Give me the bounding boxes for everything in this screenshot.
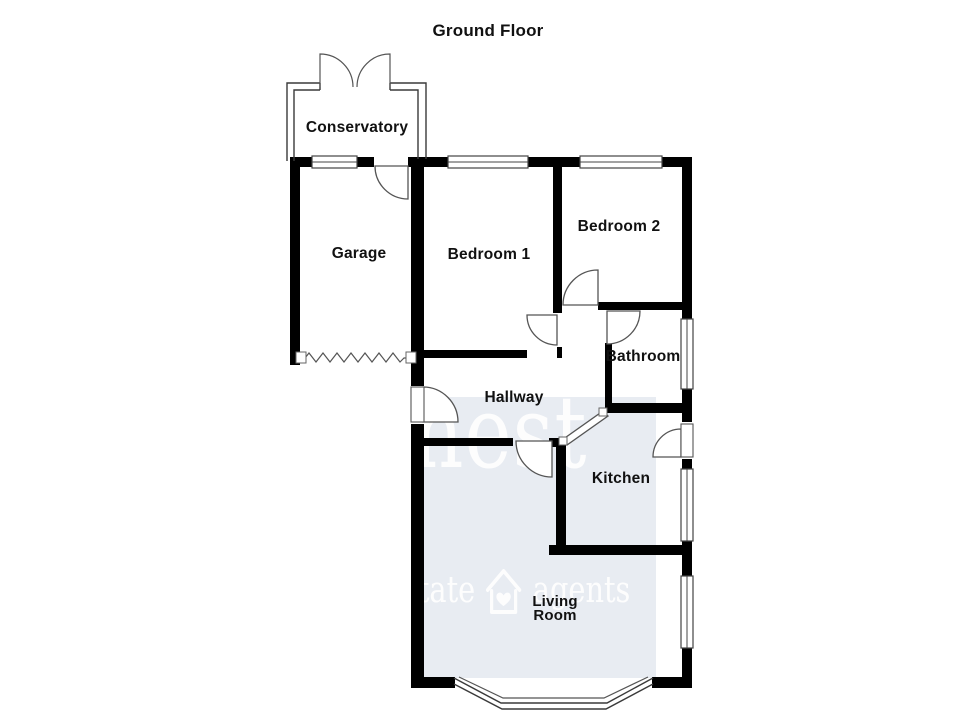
window-bedroom1 — [448, 156, 528, 168]
bifold-door-kitchen — [559, 408, 608, 445]
room-label-bathroom: Bathroom — [606, 348, 681, 366]
window-living-room — [681, 576, 693, 648]
wall-nub-hall — [557, 347, 562, 358]
door-bathroom — [607, 311, 640, 344]
room-label-bedroom2: Bedroom 2 — [578, 218, 661, 236]
door-bedroom2 — [563, 270, 598, 305]
door-front-leaf — [411, 387, 424, 422]
room-label-hallway: Hallway — [484, 389, 543, 407]
door-bedroom1 — [527, 315, 557, 345]
room-label-conservatory: Conservatory — [306, 119, 408, 137]
wall-hall-living — [411, 438, 513, 446]
wall-bottom-right — [652, 677, 692, 688]
room-label-kitchen: Kitchen — [592, 470, 650, 488]
wall-bedroom-divider — [553, 157, 562, 313]
window-bathroom — [681, 319, 693, 389]
wall-garage-left — [290, 157, 300, 365]
door-back-leaf — [681, 424, 693, 457]
door-living-room — [516, 441, 552, 477]
garage-door-zigzag — [296, 352, 416, 363]
wall-kitchen-south — [549, 545, 692, 555]
door-back — [653, 429, 681, 457]
bay-window — [454, 677, 653, 709]
wall-bottom-left — [411, 677, 455, 688]
floorplan-page: nest estate agents — [0, 0, 980, 712]
window-garage — [312, 156, 357, 168]
floorplan-drawing — [0, 0, 980, 712]
door-front — [423, 387, 458, 422]
room-label-garage: Garage — [332, 245, 387, 263]
wall-bedroom1-south — [411, 350, 527, 358]
door-conservatory-garage — [375, 166, 408, 199]
room-label-living-room: Living Room — [523, 595, 587, 623]
window-kitchen — [681, 469, 693, 541]
wall-bathroom-south — [605, 403, 682, 413]
walls — [290, 157, 692, 688]
window-bedroom2 — [580, 156, 662, 168]
french-doors — [320, 54, 390, 87]
room-label-bedroom1: Bedroom 1 — [448, 246, 531, 264]
wall-kitchen-west — [556, 441, 566, 553]
floor-title: Ground Floor — [433, 21, 544, 41]
wall-bedroom2-south — [598, 302, 682, 310]
